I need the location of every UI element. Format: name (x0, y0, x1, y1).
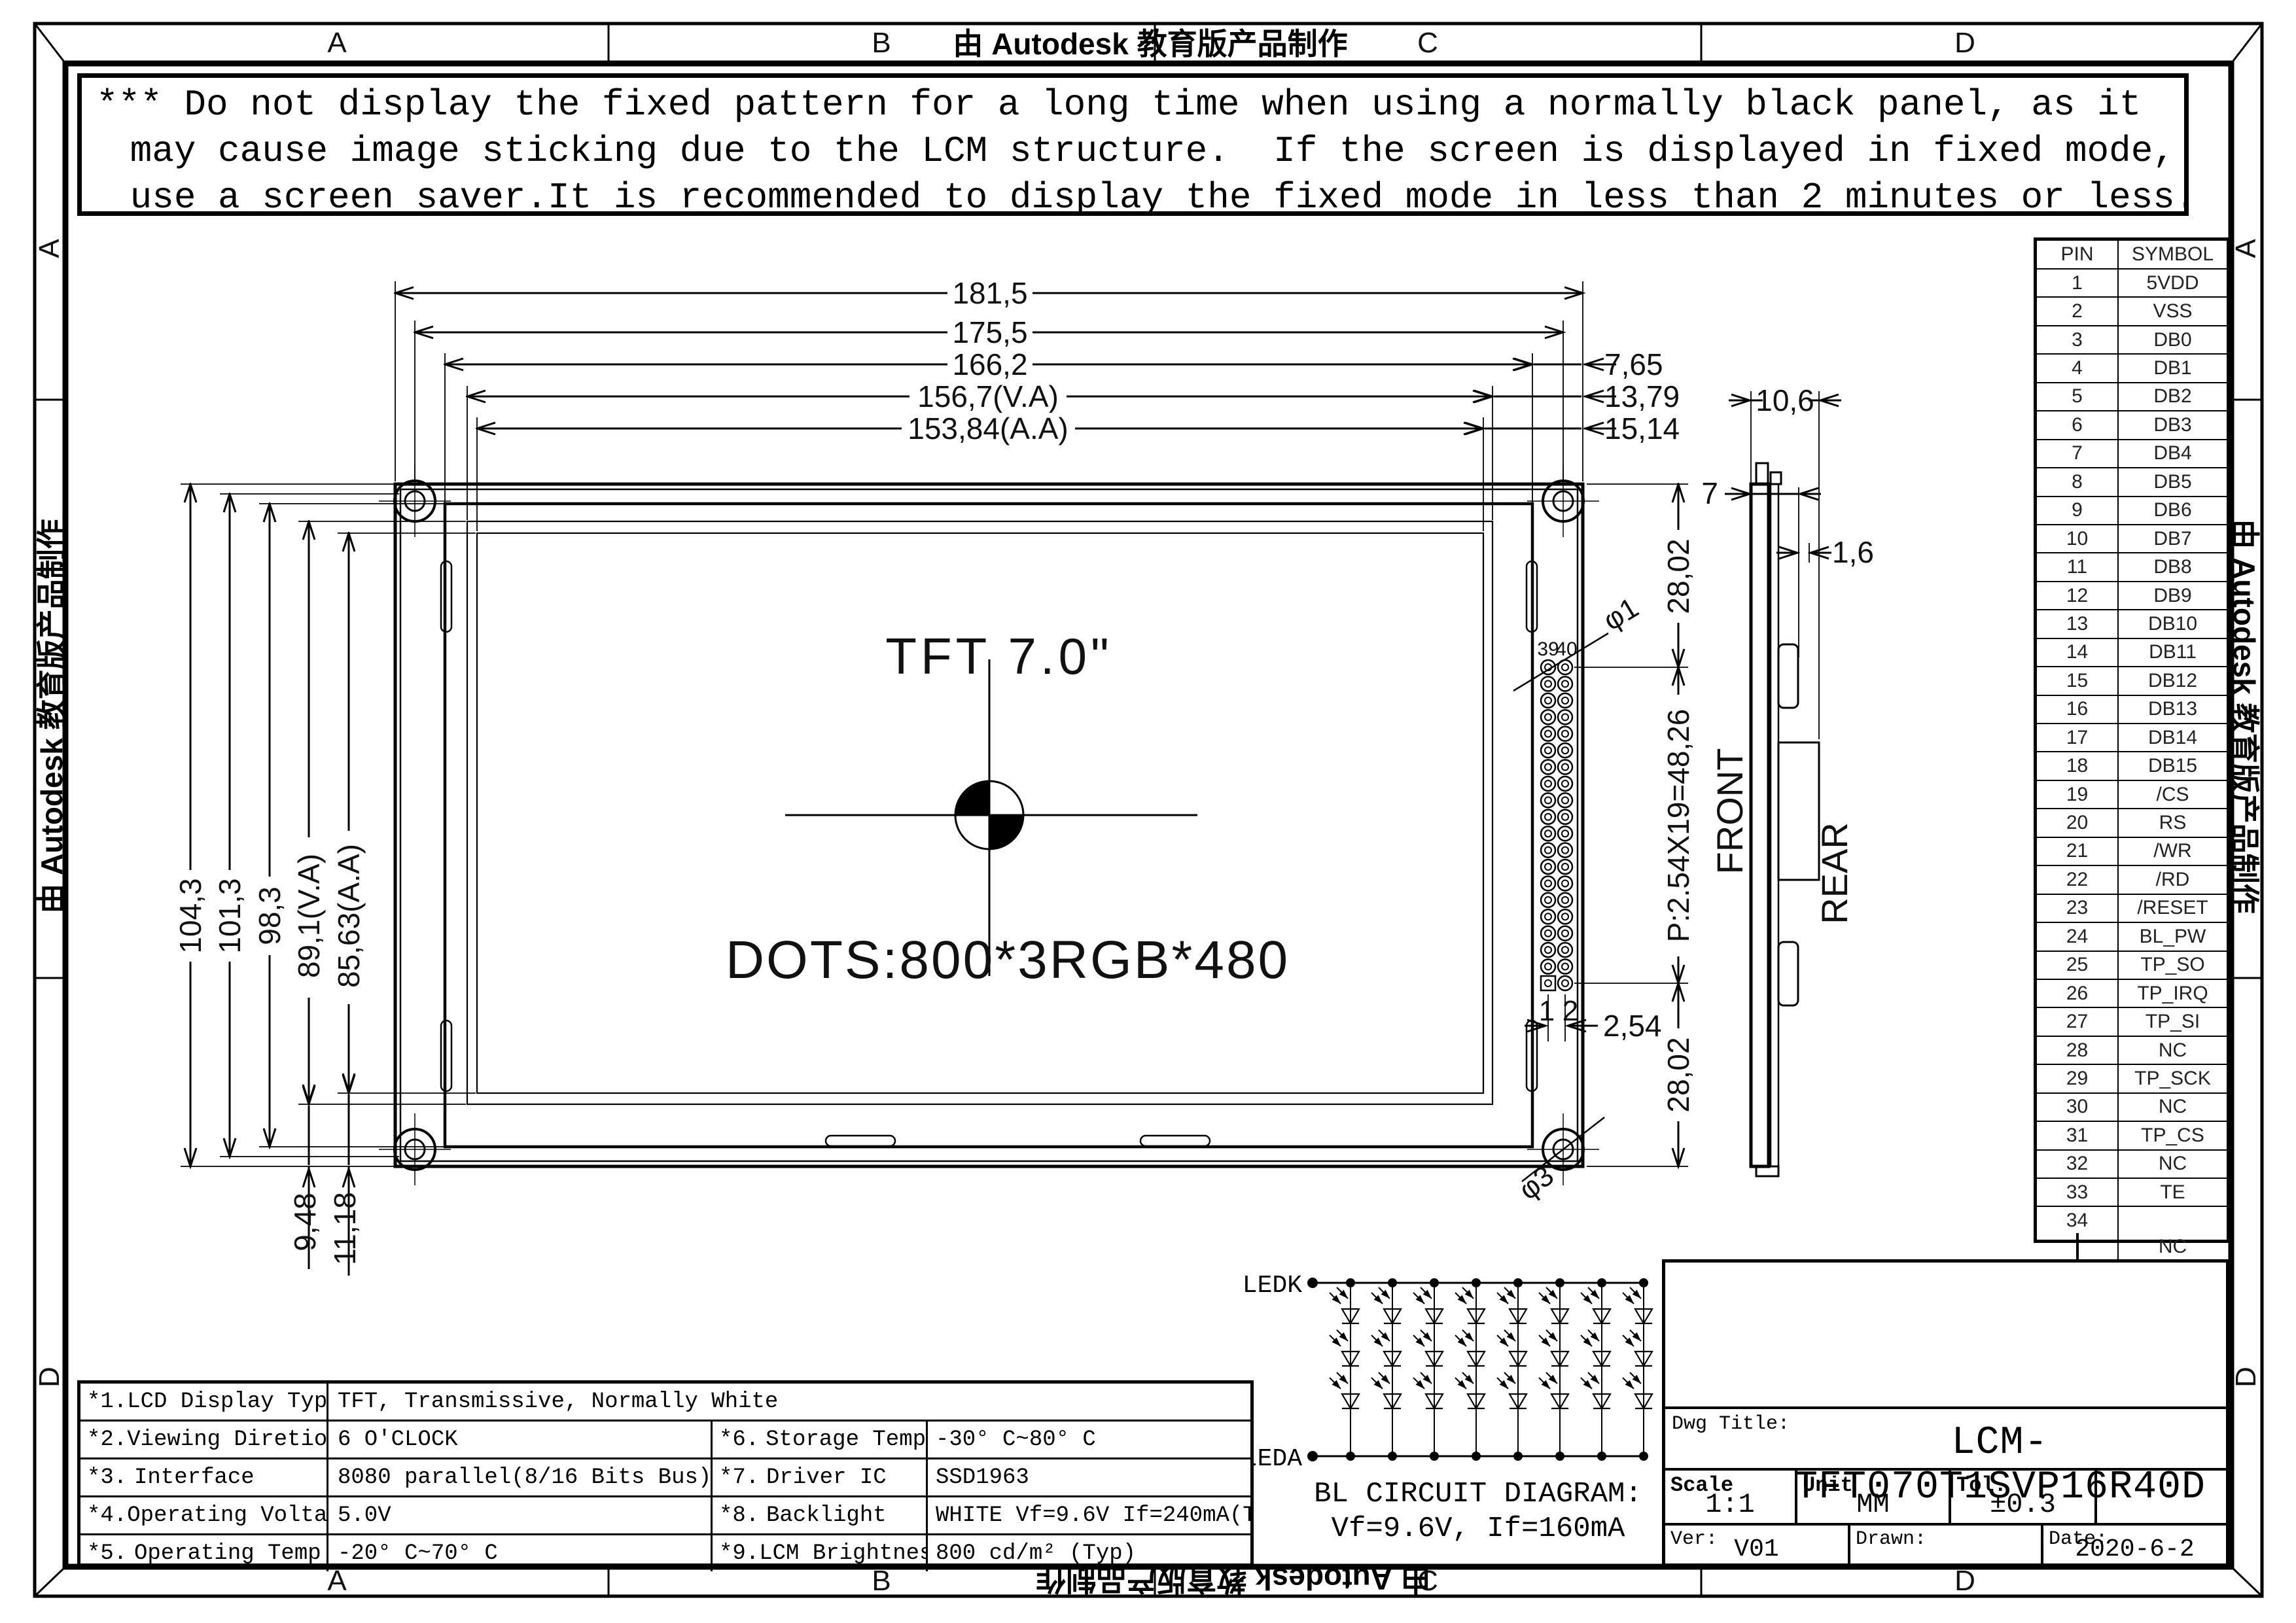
pin-table-row: 20RS (2037, 809, 2227, 837)
pin-symbol: /RD (2119, 866, 2227, 893)
title-block-dwg-row: Dwg Title: LCM-TFT070T1SVP16R40D (1665, 1409, 2226, 1471)
pin-table-row: 29TP_SCK (2037, 1065, 2227, 1093)
spec-value: 8080 parallel(8/16 Bits Bus) (328, 1459, 713, 1495)
pin-symbol: /RESET (2119, 895, 2227, 922)
svg-text:175,5: 175,5 (952, 315, 1027, 349)
spec-label: *5.Operating Temp (80, 1535, 328, 1571)
pin-table-row: 9DB6 (2037, 497, 2227, 525)
svg-text:28,02: 28,02 (1661, 1037, 1695, 1112)
pin-number: 30 (2037, 1094, 2119, 1121)
pin-symbol: RS (2119, 809, 2227, 836)
zone-letter-left-d: D (33, 1367, 66, 1387)
pin-table-row: 18DB15 (2037, 752, 2227, 780)
tol-cell: Tol. ±0.3 (1951, 1471, 2097, 1523)
pin-symbol: DB2 (2119, 383, 2227, 410)
svg-text:153,84(A.A): 153,84(A.A) (908, 411, 1068, 445)
bl-circuit (1307, 1278, 1652, 1461)
pin-symbol: DB8 (2119, 553, 2227, 580)
pin-table-row: 28NC (2037, 1037, 2227, 1065)
svg-text:104,3: 104,3 (173, 878, 207, 953)
pin-symbol: DB14 (2119, 724, 2227, 751)
pin-number: 21 (2037, 838, 2119, 865)
pin-number: 25 (2037, 952, 2119, 979)
svg-text:28,02: 28,02 (1661, 538, 1695, 614)
pin-table-row: 26TP_IRQ (2037, 980, 2227, 1008)
pin-table-row: 22/RD (2037, 866, 2227, 894)
pin-number: 16 (2037, 696, 2119, 723)
date-cell: Date: 2020-6-2 (2043, 1526, 2226, 1566)
spec-label: *4.Operating Voltage (80, 1497, 328, 1533)
pin-symbol: DB9 (2119, 582, 2227, 609)
pin-number: 28 (2037, 1037, 2119, 1064)
pin-table-row: 3DB0 (2037, 326, 2227, 355)
zone-letter-right-d: D (2230, 1367, 2263, 1387)
zone-letter-top-c: C (1417, 27, 1438, 60)
ver-value: V01 (1665, 1535, 1848, 1563)
pin-number: 20 (2037, 809, 2119, 836)
pin-table-row: 30NC (2037, 1094, 2227, 1122)
pin-number: 8 (2037, 468, 2119, 495)
spec-label: *7.Driver IC (713, 1459, 928, 1495)
scale-cell: Scale 1:1 (1665, 1471, 1797, 1523)
pin-table-row: 2VSS (2037, 298, 2227, 326)
zone-letter-top-d: D (1954, 27, 1975, 60)
svg-text:101,3: 101,3 (213, 878, 247, 953)
pin-symbol: TP_CS (2119, 1122, 2227, 1149)
spec-value: -30° C~80° C (928, 1422, 1250, 1457)
pin-symbol: DB4 (2119, 440, 2227, 467)
pin-number: 6 (2037, 411, 2119, 438)
pin-number: 33 (2037, 1179, 2119, 1206)
pin-table-header-symbol: SYMBOL (2119, 241, 2227, 268)
pin-number: 31 (2037, 1122, 2119, 1149)
ledk-label: LEDK (1243, 1272, 1302, 1300)
title-block-empty-area (1665, 1263, 2226, 1409)
dimension-texts: 181,5 175,5 166,2 156,7(V.A) 153,84(A.A)… (173, 276, 1874, 1265)
pin-number: 3 (2037, 326, 2119, 353)
zone-letter-left-a: A (33, 239, 66, 258)
pin-number: 32 (2037, 1151, 2119, 1178)
pin-table-row: 15DB12 (2037, 667, 2227, 695)
pin-number: 18 (2037, 752, 2119, 779)
pin-symbol: DB1 (2119, 355, 2227, 381)
svg-text:156,7(V.A): 156,7(V.A) (917, 379, 1059, 413)
pin-table-row: 15VDD (2037, 270, 2227, 298)
pin-symbol: NC (2119, 1151, 2227, 1178)
drawing-sheet: TFT 7.0" DOTS:800*3RGB*480 39 40 1 2 (0, 0, 2296, 1623)
pin-table-row: 4DB1 (2037, 355, 2227, 383)
bl-title: BL CIRCUIT DIAGRAM: (1314, 1478, 1642, 1510)
pin-symbol: DB11 (2119, 639, 2227, 666)
pin-symbol: DB13 (2119, 696, 2227, 723)
pin-table-row: 8DB5 (2037, 468, 2227, 497)
spec-row-1: *1.LCD Display Type TFT, Transmissive, N… (80, 1384, 1250, 1422)
pin-symbol: DB0 (2119, 326, 2227, 353)
spec-label: *8.Backlight (713, 1497, 928, 1533)
svg-text:13,79: 13,79 (1604, 379, 1680, 413)
scale-value: 1:1 (1665, 1489, 1795, 1520)
pin-table-row: 14DB11 (2037, 639, 2227, 667)
pin-symbol: /CS (2119, 781, 2227, 808)
spec-label: *9.LCM Brightness (713, 1535, 928, 1571)
zone-letter-top-b: B (872, 27, 891, 60)
pin-number: 15 (2037, 667, 2119, 694)
svg-text:7,65: 7,65 (1604, 347, 1663, 381)
watermark-right: 由 Autodesk 教育版产品制作 (2225, 519, 2268, 913)
svg-text:11,18: 11,18 (328, 1192, 362, 1265)
pin-table-row: 13DB10 (2037, 610, 2227, 638)
pin-symbol: VSS (2119, 298, 2227, 324)
spec-value: 5.0V (328, 1497, 713, 1533)
pin-number: 5 (2037, 383, 2119, 410)
spec-value: 6 O'CLOCK (328, 1422, 713, 1457)
spec-value: SSD1963 (928, 1459, 1250, 1495)
pin-number: 29 (2037, 1065, 2119, 1092)
warning-line-1: *** Do not display the fixed pattern for… (82, 78, 2184, 128)
pin-number: 26 (2037, 980, 2119, 1007)
spec-label: *3.Interface (80, 1459, 328, 1495)
pin-symbol: DB6 (2119, 497, 2227, 524)
pin-table-row: 7DB4 (2037, 440, 2227, 468)
zone-letter-top-a: A (327, 27, 346, 60)
pin-symbol: DB5 (2119, 468, 2227, 495)
pin-number: 24 (2037, 923, 2119, 950)
spec-value: -20° C~70° C (328, 1535, 713, 1571)
svg-text:7: 7 (1701, 476, 1718, 510)
svg-text:1,6: 1,6 (1832, 535, 1874, 569)
pin-table-row: 11DB8 (2037, 553, 2227, 582)
dwg-title-label: Dwg Title: (1672, 1413, 1790, 1435)
center-mark (785, 659, 1197, 976)
zone-letter-bottom-d: D (1954, 1565, 1975, 1597)
svg-text:15,14: 15,14 (1604, 411, 1680, 445)
pin-table-row: 27TP_SI (2037, 1008, 2227, 1036)
svg-text:181,5: 181,5 (952, 276, 1027, 310)
spec-value: TFT, Transmissive, Normally White (328, 1384, 1250, 1420)
pin-table-row: 16DB13 (2037, 696, 2227, 724)
pin-number: 7 (2037, 440, 2119, 467)
svg-text:φ1: φ1 (1598, 591, 1644, 637)
pin-symbol: NC (2119, 1037, 2227, 1064)
pin-number: 23 (2037, 895, 2119, 922)
pin-number: 4 (2037, 355, 2119, 381)
pin-number: 22 (2037, 866, 2119, 893)
pin-number: 1 (2037, 270, 2119, 296)
spec-table: *1.LCD Display Type TFT, Transmissive, N… (77, 1380, 1254, 1567)
pin-symbol: TP_SCK (2119, 1065, 2227, 1092)
pin-number: 17 (2037, 724, 2119, 751)
title-block: Dwg Title: LCM-TFT070T1SVP16R40D Scale 1… (1662, 1259, 2229, 1567)
drawn-label: Drawn: (1856, 1528, 1926, 1550)
pin-number: 27 (2037, 1008, 2119, 1035)
pin-table-row: 31TP_CS (2037, 1122, 2227, 1150)
pin-symbol: DB7 (2119, 525, 2227, 552)
pin-symbol: TP_SI (2119, 1008, 2227, 1035)
pin-symbol: /WR (2119, 838, 2227, 865)
pin-table-row: 24BL_PW (2037, 923, 2227, 951)
watermark-left: 由 Autodesk 教育版产品制作 (28, 519, 71, 913)
spec-value: WHITE Vf=9.6V If=240mA(Typ) (928, 1497, 1250, 1533)
unit-cell: Unit MM (1797, 1471, 1951, 1523)
pin-number: 11 (2037, 553, 2119, 580)
pin-table-row: 23/RESET (2037, 895, 2227, 923)
svg-text:98,3: 98,3 (253, 886, 287, 945)
pin-table-row: 19/CS (2037, 781, 2227, 809)
pin-symbol: 5VDD (2119, 270, 2227, 296)
svg-text:166,2: 166,2 (952, 347, 1027, 381)
pin-table-header-pin: PIN (2037, 241, 2119, 268)
pin-symbol: DB3 (2119, 411, 2227, 438)
spec-label: *1.LCD Display Type (80, 1384, 328, 1420)
pin-table-rows: 15VDD2VSS3DB04DB15DB26DB37DB48DB59DB610D… (2037, 270, 2227, 1207)
tol-value: ±0.3 (1951, 1489, 2094, 1520)
warning-line-2: may cause image sticking due to the LCM … (82, 128, 2184, 175)
svg-text:89,1(V.A): 89,1(V.A) (292, 854, 326, 978)
pin-symbol: DB10 (2119, 610, 2227, 637)
connector-holes (1541, 660, 1572, 990)
pin-table-row: 25TP_SO (2037, 952, 2227, 980)
pin-symbol: BL_PW (2119, 923, 2227, 950)
pin-table-row: 32NC (2037, 1151, 2227, 1179)
svg-text:2,54: 2,54 (1603, 1009, 1662, 1043)
warning-note: *** Do not display the fixed pattern for… (77, 73, 2189, 216)
pin-number: 2 (2037, 298, 2119, 324)
bl-subtitle: Vf=9.6V, If=160mA (1332, 1512, 1625, 1545)
pin-table-row: 10DB7 (2037, 525, 2227, 553)
pin-number: 19 (2037, 781, 2119, 808)
svg-text:85,63(A.A): 85,63(A.A) (332, 844, 366, 988)
pin-table-row: 5DB2 (2037, 383, 2227, 411)
title-block-scale-row: Scale 1:1 Unit MM Tol. ±0.3 (1665, 1471, 2226, 1526)
warning-line-3: use a screen saver.It is recommended to … (82, 175, 2184, 221)
pin-symbol: NC (2119, 1094, 2227, 1121)
pin-symbol: TP_SO (2119, 952, 2227, 979)
spec-row-3: *3.Interface 8080 parallel(8/16 Bits Bus… (80, 1459, 1250, 1497)
spec-row-2: *2.Viewing Diretion 6 O'CLOCK *6.Storage… (80, 1422, 1250, 1459)
pin-table-header: PIN SYMBOL (2037, 241, 2227, 270)
spec-label: *6.Storage Temp (713, 1422, 928, 1457)
panel-size-label: TFT 7.0" (885, 627, 1112, 685)
pin-number: 14 (2037, 639, 2119, 666)
pin-table-row: 6DB3 (2037, 411, 2227, 440)
pin-number: 12 (2037, 582, 2119, 609)
spec-label: *2.Viewing Diretion (80, 1422, 328, 1457)
spec-row-4: *4.Operating Voltage 5.0V *8.Backlight W… (80, 1497, 1250, 1535)
title-block-ver-row: Ver: V01 Drawn: Date: 2020-6-2 (1665, 1526, 2226, 1566)
rear-view-label: REAR (1814, 822, 1855, 924)
pin-symbol: TE (2119, 1179, 2227, 1206)
pin-table-row: 17DB14 (2037, 724, 2227, 752)
connector-pin40-label: 40 (1555, 638, 1577, 660)
unit-value: MM (1797, 1489, 1949, 1520)
panel-dots-label: DOTS:800*3RGB*480 (726, 930, 1290, 990)
pin-number: 9 (2037, 497, 2119, 524)
pin-symbol: DB15 (2119, 752, 2227, 779)
ver-cell: Ver: V01 (1665, 1526, 1850, 1566)
pin-merged-bar (2076, 1233, 2079, 1261)
watermark-top: 由 Autodesk 教育版产品制作 (953, 20, 1347, 63)
svg-text:P:2.54X19=48,26: P:2.54X19=48,26 (1661, 709, 1695, 943)
pin-table: PIN SYMBOL 15VDD2VSS3DB04DB15DB26DB37DB4… (2034, 237, 2230, 1243)
pin-table-row: 33TE (2037, 1179, 2227, 1207)
zone-letter-right-a: A (2230, 239, 2263, 258)
date-value: 2020-6-2 (2043, 1535, 2226, 1563)
spec-value: 800 cd/m² (Typ) (928, 1535, 1250, 1571)
connector-pin1-label: 1 (1539, 995, 1555, 1027)
pin-number: 13 (2037, 610, 2119, 637)
projection-symbol-cell (2097, 1471, 2226, 1523)
pin-symbol: TP_IRQ (2119, 980, 2227, 1007)
spec-row-5: *5.Operating Temp -20° C~70° C *9.LCM Br… (80, 1535, 1250, 1571)
pin-number: 10 (2037, 525, 2119, 552)
pin-symbol: DB12 (2119, 667, 2227, 694)
pin-table-row: 21/WR (2037, 838, 2227, 866)
pin-merged-from: 34 (2066, 1210, 2088, 1232)
drawn-cell: Drawn: (1850, 1526, 2043, 1566)
svg-text:9,48: 9,48 (288, 1193, 322, 1251)
side-view (1751, 463, 1819, 1176)
front-view-label: FRONT (1709, 748, 1750, 875)
pin-table-row: 12DB9 (2037, 582, 2227, 610)
svg-text:10,6: 10,6 (1756, 383, 1814, 417)
